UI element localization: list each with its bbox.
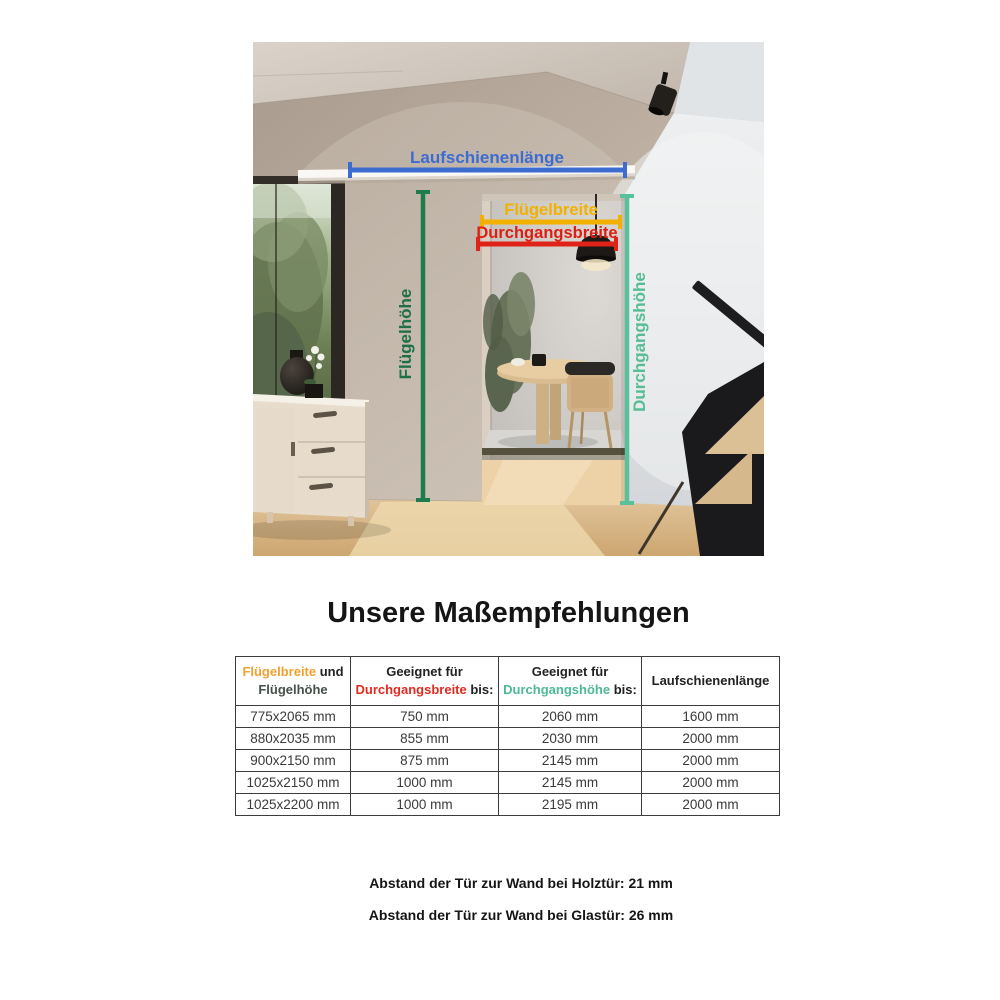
durchgangshoehe-label: Durchgangshöhe: [630, 272, 649, 412]
chair-cushion: [565, 362, 615, 375]
table-row: 1025x2200 mm1000 mm2195 mm2000 mm: [236, 794, 780, 816]
header-fluegelbreite-hoehe: Flügelbreite undFlügelhöhe: [236, 657, 351, 706]
table-row: 880x2035 mm855 mm2030 mm2000 mm: [236, 728, 780, 750]
distance-notes: Abstand der Tür zur Wand bei Holztür: 21…: [253, 876, 789, 941]
product-info-sheet: Laufschienenlänge Flügelbreite Durchgang…: [0, 0, 1000, 1000]
table-header-row: Flügelbreite undFlügelhöhe Geeignet fürD…: [236, 657, 780, 706]
threshold: [482, 448, 625, 455]
room-photo: Laufschienenlänge Flügelbreite Durchgang…: [253, 42, 764, 556]
header-durchgangshoehe: Geeignet fürDurchgangshöhe bis:: [499, 657, 642, 706]
table-row: 1025x2150 mm1000 mm2145 mm2000 mm: [236, 772, 780, 794]
header-durchgangsbreite: Geeignet fürDurchgangsbreite bis:: [351, 657, 499, 706]
header-laufschienenlaenge: Laufschienenlänge: [642, 657, 780, 706]
fluegelhoehe-label: Flügelhöhe: [396, 289, 415, 380]
measurement-table: Flügelbreite undFlügelhöhe Geeignet fürD…: [235, 656, 780, 816]
note-glastuer: Abstand der Tür zur Wand bei Glastür: 26…: [253, 908, 789, 923]
bowl: [511, 358, 525, 366]
stairwell-ceiling: [674, 42, 764, 122]
table-row: 900x2150 mm875 mm2145 mm2000 mm: [236, 750, 780, 772]
note-holztuer: Abstand der Tür zur Wand bei Holztür: 21…: [253, 876, 789, 891]
laufschienenlaenge-label: Laufschienenlänge: [410, 148, 564, 167]
teapot: [532, 354, 546, 366]
page-title: Unsere Maßempfehlungen: [253, 597, 764, 630]
table-row: 775x2065 mm750 mm2060 mm1600 mm: [236, 706, 780, 728]
durchgangsbreite-label: Durchgangsbreite: [476, 224, 617, 242]
fluegelbreite-label: Flügelbreite: [504, 201, 598, 219]
